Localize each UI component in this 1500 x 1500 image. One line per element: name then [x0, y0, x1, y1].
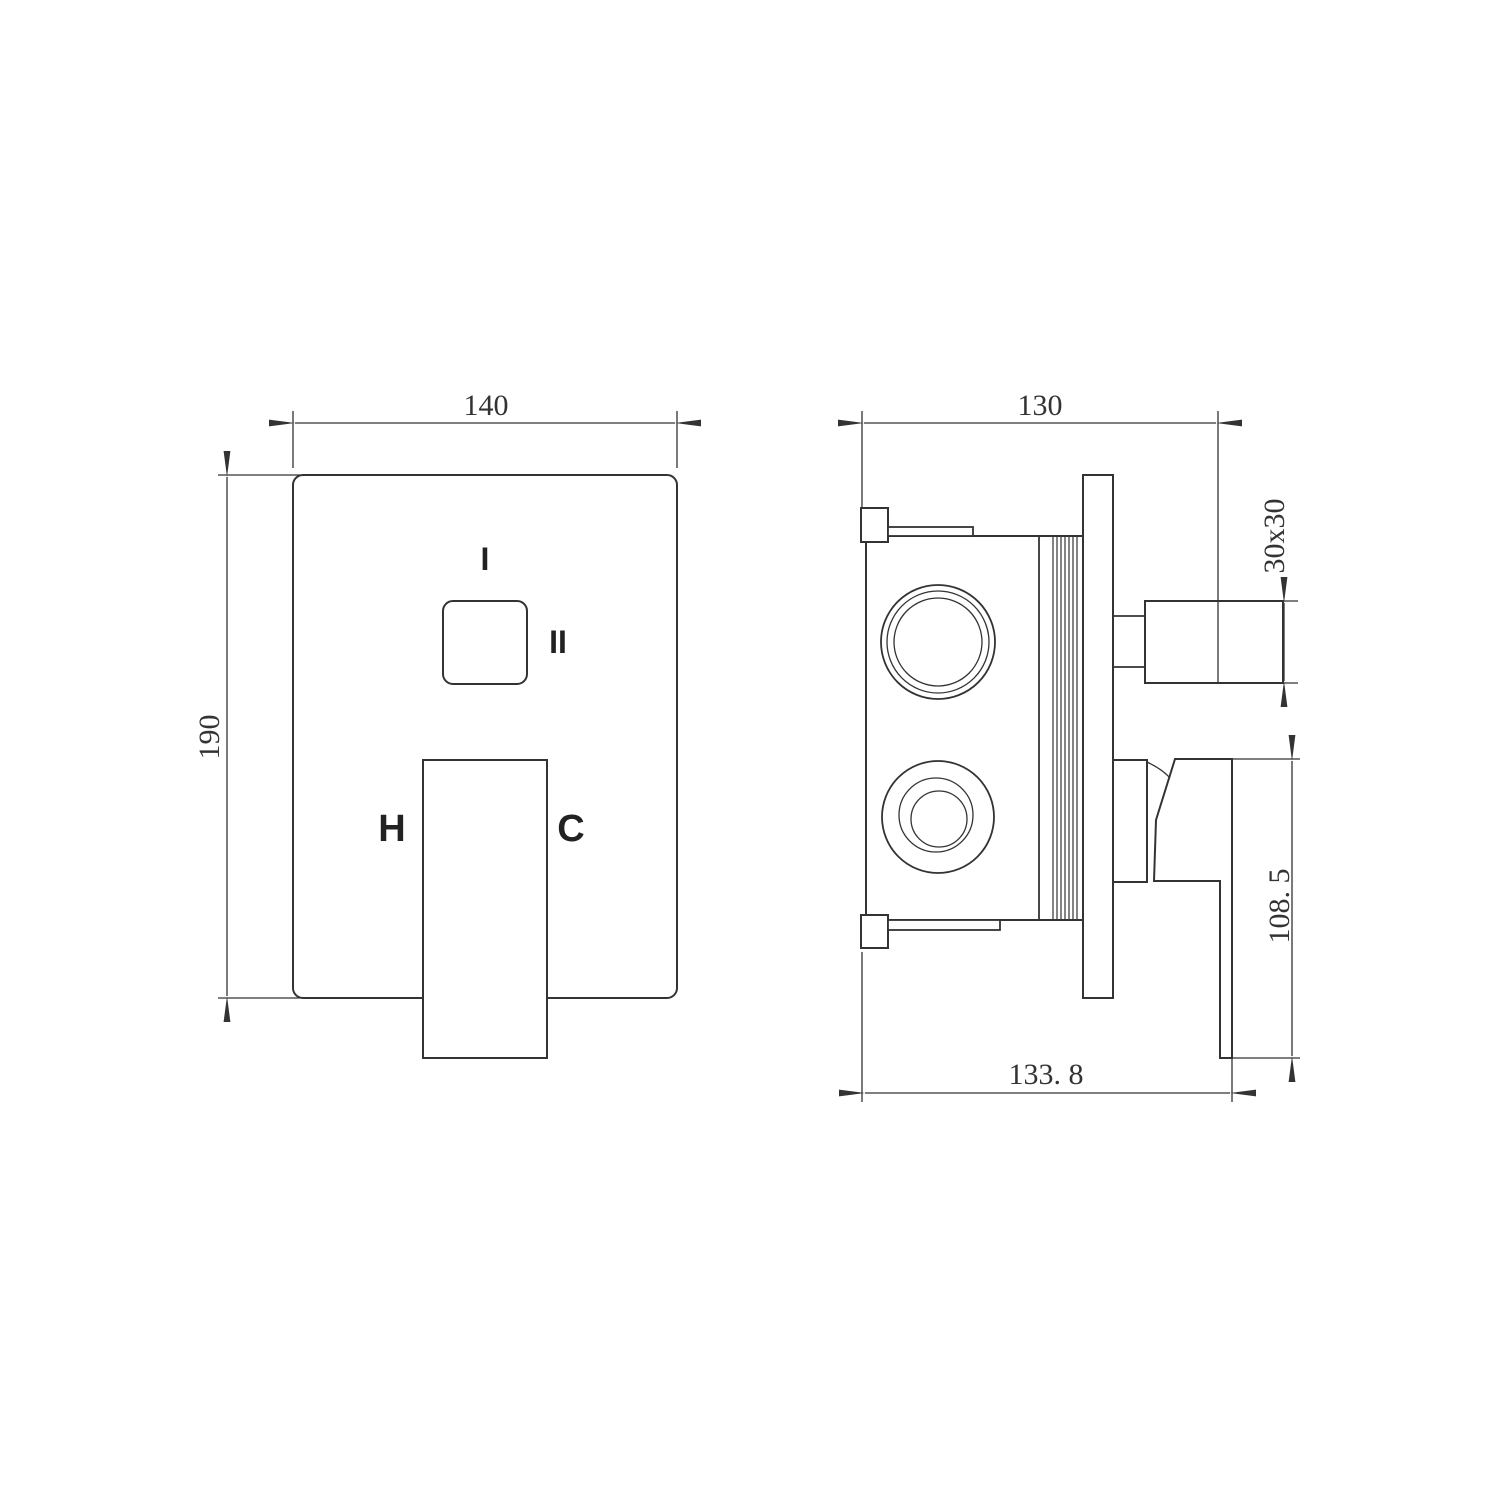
- dimension-text: 133. 8: [1009, 1058, 1084, 1091]
- handle-base: [1113, 760, 1147, 882]
- hot-label: H: [378, 808, 405, 850]
- dimension-total-depth: 133. 8: [862, 952, 1232, 1102]
- valve-body: [861, 508, 1083, 948]
- front-view: I II H C 140 190: [193, 389, 677, 1058]
- dimension-text: 30x30: [1258, 499, 1291, 574]
- outlet-square-stub: [1145, 601, 1283, 683]
- dimension-height: 190: [193, 475, 300, 998]
- adjustment-ribs: [1053, 536, 1077, 920]
- technical-drawing: I II H C 140 190: [0, 0, 1500, 1500]
- dimension-text: 140: [464, 389, 509, 422]
- handle-lever: [1154, 759, 1232, 1058]
- lever-handle-side: [1113, 759, 1232, 1058]
- lever-handle-front: [423, 760, 547, 1058]
- cold-label: C: [557, 808, 584, 850]
- mounting-tab-bottom: [861, 915, 888, 948]
- dimension-width: 140: [293, 389, 677, 468]
- mounting-rail-top: [888, 527, 973, 536]
- dimension-text: 190: [193, 715, 226, 760]
- lower-port: [882, 761, 994, 873]
- side-view: 130 30x30 108. 5 133. 8: [861, 389, 1300, 1102]
- extension-lines: [218, 475, 300, 998]
- mounting-tab-top: [861, 508, 888, 542]
- handle-joint-curve: [1147, 762, 1170, 778]
- diverter-label-1: I: [481, 541, 490, 577]
- extension-lines: [1283, 601, 1298, 683]
- outlet-neck: [1113, 616, 1145, 667]
- faceplate-edge: [1083, 475, 1113, 998]
- diverter-label-2: II: [549, 624, 567, 660]
- dimension-text: 130: [1018, 389, 1063, 422]
- upper-port: [881, 585, 995, 699]
- dimension-text: 108. 5: [1263, 869, 1296, 944]
- mounting-rail-bottom: [888, 920, 1000, 930]
